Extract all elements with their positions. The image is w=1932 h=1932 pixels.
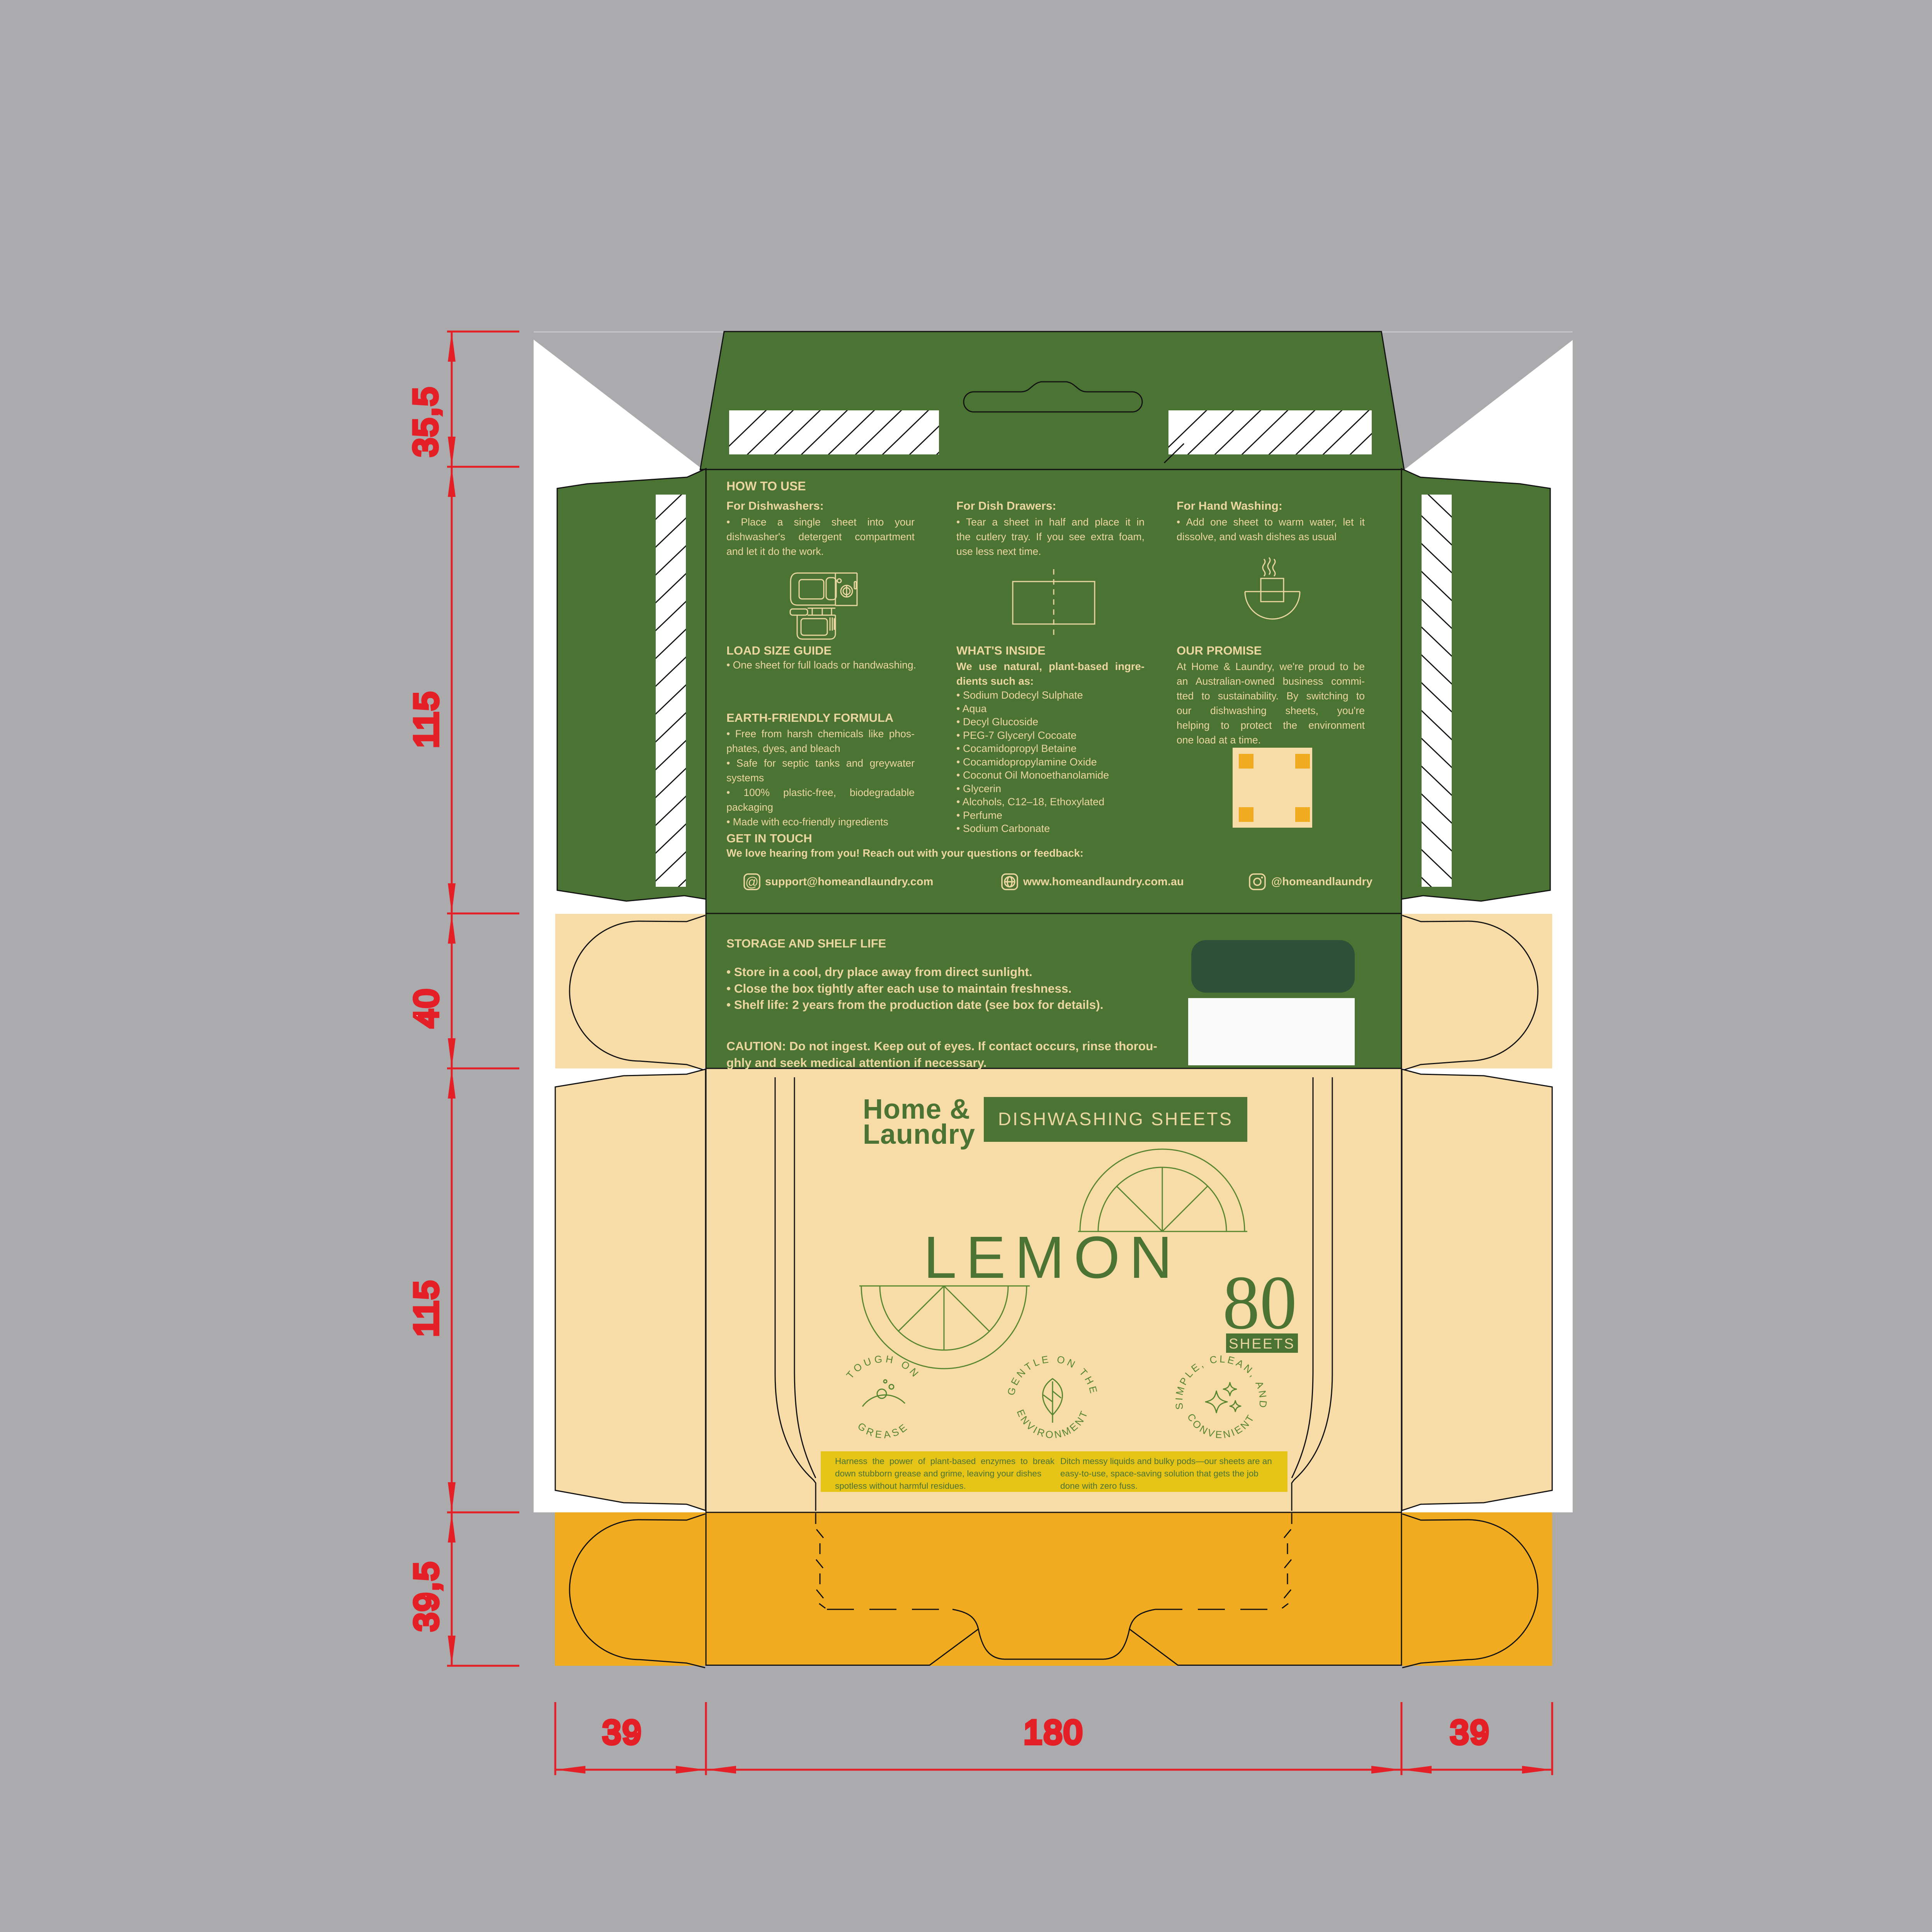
svg-text:@: @ (745, 875, 759, 889)
